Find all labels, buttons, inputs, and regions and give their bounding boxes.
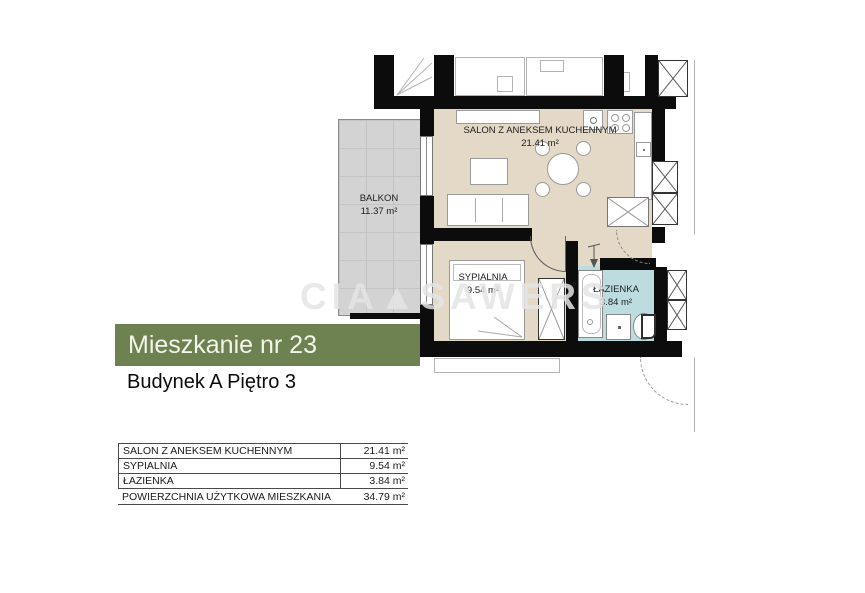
bedroom-door-leaf <box>565 236 566 272</box>
room-area: 21.41 m² <box>440 137 640 150</box>
table-row: SALON Z ANEKSEM KUCHENNYM 21.41 m² <box>119 444 408 459</box>
room-name: SALON Z ANEKSEM KUCHENNYM <box>440 124 640 137</box>
window-symbol <box>420 136 433 196</box>
watermark: CIA▲SAWERS <box>300 276 611 318</box>
neighbor-furniture-outline <box>540 60 564 72</box>
kitchen-counter-symbol <box>456 110 540 124</box>
building-floor-subtitle: Budynek A Piętro 3 <box>127 371 296 394</box>
floor-plan-page: SALON Z ANEKSEM KUCHENNYM 21.41 m² BALKO… <box>0 0 865 593</box>
wall <box>420 341 682 357</box>
bathroom-door-arrow <box>586 242 602 270</box>
room-name-cell: SYPIALNIA <box>119 459 340 473</box>
balcony-label: BALKON 11.37 m² <box>340 192 418 219</box>
total-value-cell: 34.79 m² <box>341 490 408 504</box>
total-label-cell: POWIERZCHNIA UŻYTKOWA MIESZKANIA <box>118 490 341 504</box>
wardrobe-symbol <box>607 197 649 227</box>
corridor-line <box>694 357 695 432</box>
wall <box>652 227 665 243</box>
neighbor-furniture-outline <box>497 76 513 92</box>
room-name-cell: SALON Z ANEKSEM KUCHENNYM <box>119 444 340 458</box>
apartment-title-banner: Mieszkanie nr 23 <box>115 324 420 366</box>
room-name: BALKON <box>340 192 418 205</box>
shaft-symbol <box>652 161 678 193</box>
wall <box>430 228 532 241</box>
wall <box>652 109 665 161</box>
apartment-title: Mieszkanie nr 23 <box>128 331 317 360</box>
room-name-cell: ŁAZIENKA <box>119 474 340 488</box>
table-row: SYPIALNIA 9.54 m² <box>119 459 408 474</box>
living-room-label: SALON Z ANEKSEM KUCHENNYM 21.41 m² <box>440 124 640 151</box>
room-area-cell: 21.41 m² <box>340 444 408 458</box>
neighbor-room-outline <box>455 57 525 96</box>
exterior-door-arc <box>640 357 688 405</box>
wall <box>420 109 434 136</box>
area-table: SALON Z ANEKSEM KUCHENNYM 21.41 m² SYPIA… <box>118 443 408 505</box>
room-area: 11.37 m² <box>340 205 418 218</box>
sofa-symbol <box>447 194 529 226</box>
coffee-table-symbol <box>470 158 508 185</box>
wall <box>645 55 658 98</box>
neighbor-room-outline <box>526 57 603 96</box>
table-total-row: POWIERZCHNIA UŻYTKOWA MIESZKANIA 34.79 m… <box>118 489 408 505</box>
wall <box>434 55 454 96</box>
neighbor-balcony-outline <box>434 358 560 373</box>
corridor-line <box>694 60 695 235</box>
neighbor-door-swing-lines <box>396 57 433 96</box>
wall <box>374 96 676 109</box>
washing-machine-symbol <box>641 314 656 339</box>
wall <box>604 55 624 96</box>
room-area-cell: 3.84 m² <box>340 474 408 488</box>
shaft-symbol <box>658 60 688 97</box>
table-row: ŁAZIENKA 3.84 m² <box>119 474 408 489</box>
shaft-symbol <box>667 270 687 300</box>
shaft-symbol <box>652 193 678 225</box>
shaft-symbol <box>667 300 687 330</box>
wall <box>420 196 434 244</box>
room-area-cell: 9.54 m² <box>340 459 408 473</box>
area-table-body: SALON Z ANEKSEM KUCHENNYM 21.41 m² SYPIA… <box>118 443 408 489</box>
